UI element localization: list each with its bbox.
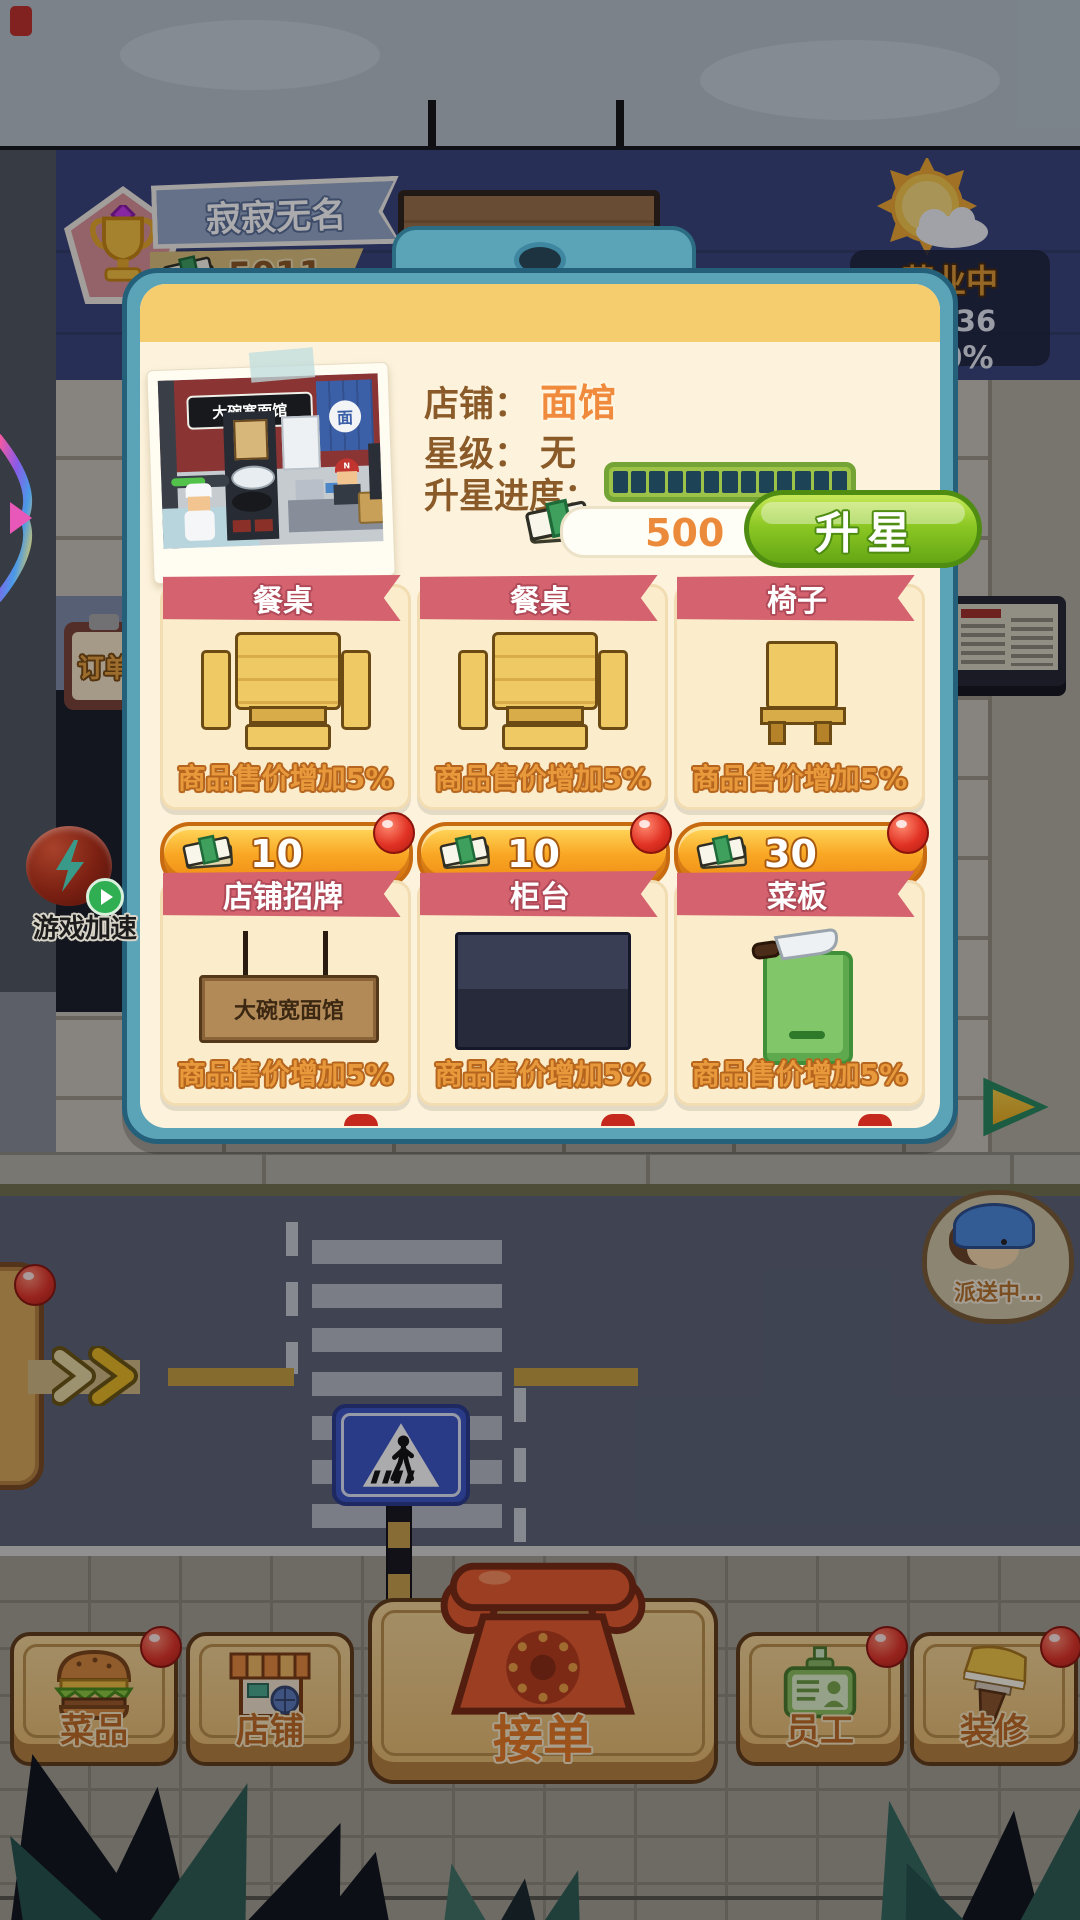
item-effect: 商品售价增加5% xyxy=(163,757,408,797)
item-name: 餐桌 xyxy=(253,576,313,620)
stove-drawer xyxy=(233,520,251,533)
upgrade-cost: 500 xyxy=(645,511,724,555)
chair-leg xyxy=(768,721,786,745)
table-frame xyxy=(249,706,327,724)
bench xyxy=(502,724,588,750)
customer-face xyxy=(337,471,357,485)
knife-icon xyxy=(747,921,843,971)
game-booster-button[interactable]: 游戏加速 xyxy=(26,826,146,934)
table-icon xyxy=(420,627,665,757)
game-screen: 订单 xyxy=(0,0,1080,1920)
upgrade-star-button[interactable]: 升星 xyxy=(744,490,982,568)
item-name-ribbon: 柜台 xyxy=(420,871,660,917)
decor-item-card[interactable]: 餐桌 商品售价增加5% xyxy=(160,584,411,810)
photo-tape xyxy=(249,347,315,382)
decor-item-card[interactable]: 店铺招牌 大碗宽面馆 商品售价增加5% xyxy=(160,880,411,1106)
chair-seat xyxy=(766,641,838,709)
chair-left xyxy=(201,650,231,730)
shop-sign-item-icon: 大碗宽面馆 xyxy=(191,931,381,1055)
item-effect: 商品售价增加5% xyxy=(677,1053,922,1093)
item-name: 店铺招牌 xyxy=(223,872,343,916)
shop-preview-photo: 大碗宽面馆 面 N xyxy=(146,362,395,584)
sign-item-text: 大碗宽面馆 xyxy=(234,993,344,1025)
item-name: 菜板 xyxy=(767,872,827,916)
decor-item-card[interactable]: 菜板 商品售价增加5% xyxy=(674,880,925,1106)
item-name-ribbon: 菜板 xyxy=(677,871,917,917)
chair-leg xyxy=(814,721,832,745)
table-icon xyxy=(163,627,408,757)
cash-icon xyxy=(694,832,752,876)
kitchen-clipboard xyxy=(233,419,268,460)
chair-icon xyxy=(677,633,922,753)
clipped-badge xyxy=(601,1114,635,1126)
item-effect: 商品售价增加5% xyxy=(677,757,922,797)
preview-scene: 大碗宽面馆 面 N xyxy=(158,373,384,549)
modal-top-strip xyxy=(140,284,940,342)
table-top xyxy=(492,632,598,710)
board-slot xyxy=(789,1031,825,1039)
cap-letter: N xyxy=(343,461,350,470)
counter-icon xyxy=(420,927,665,1055)
clipped-badge xyxy=(344,1114,378,1126)
notification-badge xyxy=(887,812,929,854)
upgrade-button-label: 升星 xyxy=(807,497,919,561)
item-name-ribbon: 餐桌 xyxy=(163,575,403,621)
chair-right xyxy=(598,650,628,730)
item-name-ribbon: 椅子 xyxy=(677,575,917,621)
water-dispenser xyxy=(281,415,321,470)
cash-icon xyxy=(180,832,238,876)
price-text: 30 xyxy=(764,832,817,876)
chef-body xyxy=(184,510,215,541)
sign-stick xyxy=(323,931,328,977)
item-name-ribbon: 店铺招牌 xyxy=(163,871,403,917)
shop-row-label: 店铺： xyxy=(424,376,529,427)
notification-badge xyxy=(373,812,415,854)
play-triangle xyxy=(101,889,113,905)
table-top xyxy=(235,632,341,710)
sign-board: 大碗宽面馆 xyxy=(199,975,379,1043)
bystander xyxy=(368,443,382,499)
item-name: 柜台 xyxy=(510,872,570,916)
counter-top xyxy=(458,935,628,989)
price-text: 10 xyxy=(250,832,303,876)
chair-right xyxy=(341,650,371,730)
chair-left xyxy=(458,650,488,730)
decor-item-card[interactable]: 柜台 商品售价增加5% xyxy=(417,880,668,1106)
stove-drawer xyxy=(255,519,273,532)
table-frame xyxy=(506,706,584,724)
item-effect: 商品售价增加5% xyxy=(420,757,665,797)
price-text: 10 xyxy=(507,832,560,876)
item-name-ribbon: 餐桌 xyxy=(420,575,660,621)
cash-icon xyxy=(437,832,495,876)
shop-row-value: 面馆 xyxy=(540,372,616,427)
noren-logo-char: 面 xyxy=(337,404,354,429)
booster-label: 游戏加速 xyxy=(10,908,160,945)
decor-item-card[interactable]: 椅子 商品售价增加5% xyxy=(674,584,925,810)
decor-item-card[interactable]: 餐桌 商品售价增加5% xyxy=(417,584,668,810)
clipped-badge xyxy=(858,1114,892,1126)
cutting-board-icon xyxy=(753,929,863,1059)
item-effect: 商品售价增加5% xyxy=(163,1053,408,1093)
screen-edge-arrow[interactable] xyxy=(0,428,48,608)
item-name: 餐桌 xyxy=(510,576,570,620)
notification-badge xyxy=(630,812,672,854)
item-effect: 商品售价增加5% xyxy=(420,1053,665,1093)
sign-stick xyxy=(243,931,248,977)
item-name: 椅子 xyxy=(767,576,827,620)
bench xyxy=(245,724,331,750)
